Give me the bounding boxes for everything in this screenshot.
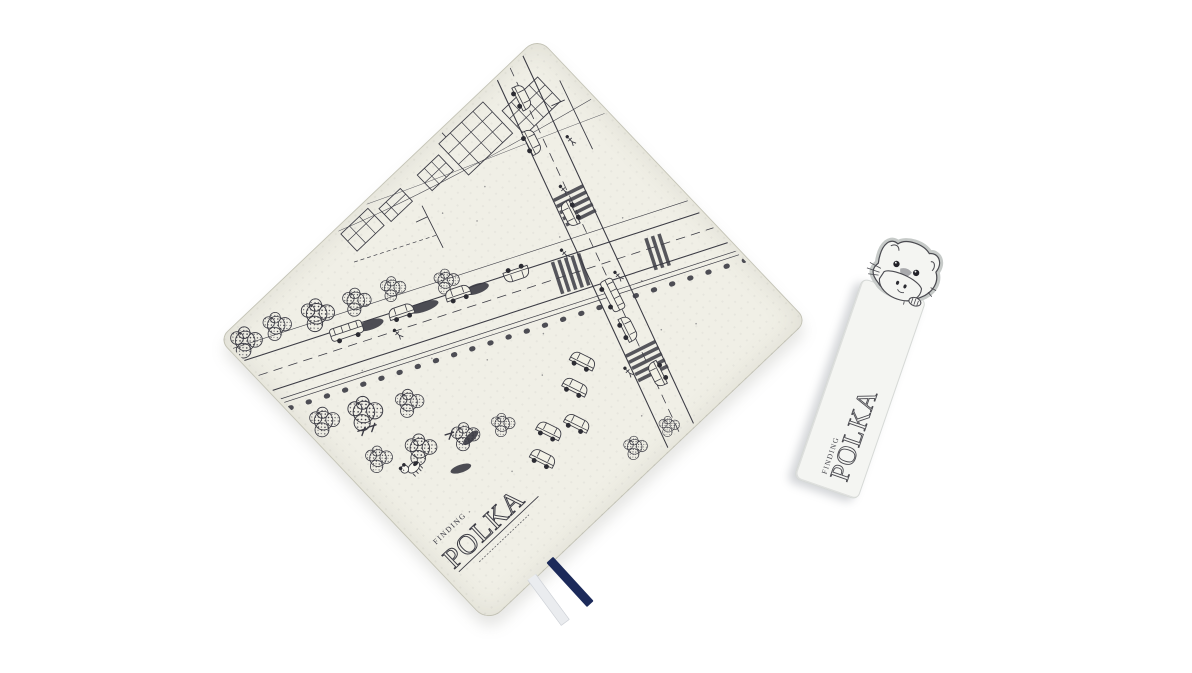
brand-logo-cover: FINDING POLKA [428,466,543,579]
brand-logo-bookmark: FINDING POLKA [808,336,896,486]
cover-illustration: FINDING POLKA [224,42,802,618]
sketch-stipple [306,124,731,548]
bookmark: FINDING POLKA [793,278,926,501]
photo-canvas: FINDING POLKA [0,0,1192,673]
sketch-crosswalks [507,162,732,390]
bookmark-character-icon [855,225,954,314]
notebook-cover: FINDING POLKA [219,36,808,623]
